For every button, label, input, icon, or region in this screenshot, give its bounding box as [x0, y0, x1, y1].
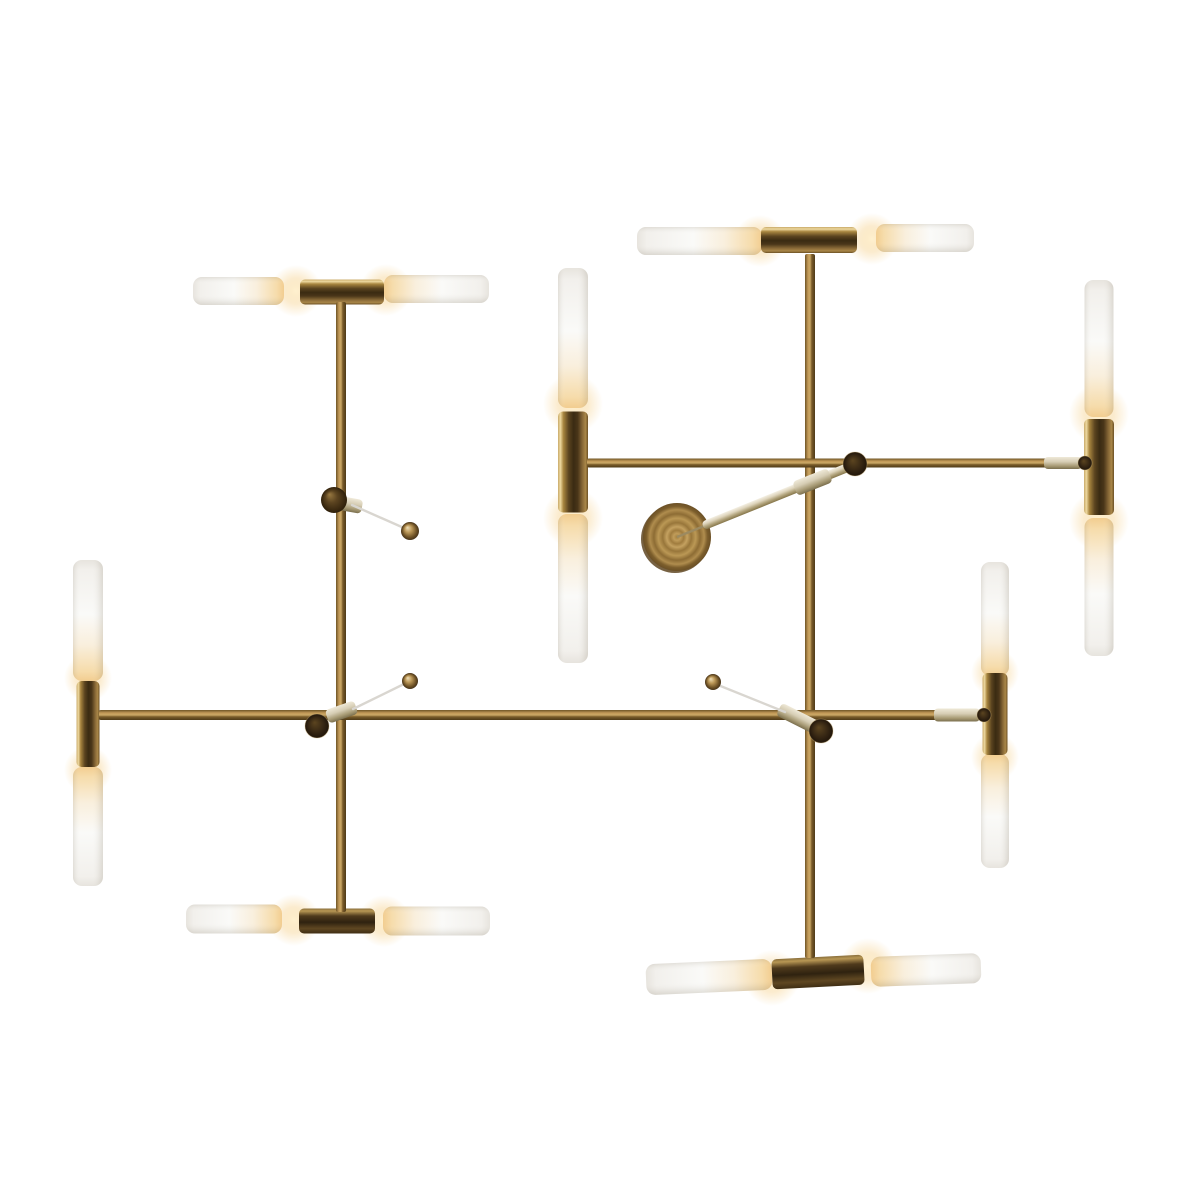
- support-wire-upper: [352, 505, 404, 528]
- chandelier-product-photo: [0, 0, 1200, 1200]
- left-vertical-rod: [336, 302, 346, 912]
- socket-main-left: [77, 681, 100, 767]
- socket-bottom-left: [299, 909, 375, 934]
- tube-bottom-right-inner: [645, 959, 772, 995]
- bar-end-sleeve-main-right: [934, 709, 980, 722]
- tube-main-right-upper-shade: [981, 562, 1009, 676]
- tube-bottom-right-inner-shade: [645, 959, 772, 995]
- end-cap-stem-knob: [843, 452, 867, 476]
- tube-mid-right-upper: [1085, 280, 1114, 417]
- tube-main-right-lower: [981, 754, 1009, 868]
- socket-top-right: [761, 227, 857, 253]
- tube-top-right-outer: [876, 224, 974, 252]
- tube-bottom-left-outer: [186, 905, 282, 934]
- socket-mid-left: [558, 412, 588, 513]
- tube-top-left-outer: [193, 277, 284, 305]
- end-cap-upper-bar-right: [1078, 456, 1092, 470]
- upper-horizontal-bar: [587, 459, 1084, 468]
- socket-top-right: [761, 227, 857, 253]
- end-cap-right-junction: [809, 719, 833, 743]
- tube-top-left-inner: [384, 275, 489, 303]
- tube-main-left-lower: [73, 767, 103, 886]
- tube-bottom-left-outer-shade: [186, 905, 282, 934]
- tube-bottom-right-outer: [871, 953, 982, 987]
- tube-main-left-upper: [73, 560, 103, 681]
- tube-bottom-left-inner: [383, 907, 490, 936]
- wire-ball-upper: [401, 522, 419, 540]
- bar-end-sleeve-upper-right: [1044, 457, 1082, 469]
- socket-top-left: [300, 280, 384, 305]
- tube-top-left-inner-shade: [384, 275, 489, 303]
- tube-mid-left-upper: [558, 268, 588, 408]
- bar-end-sleeve-main-right: [934, 709, 980, 722]
- tube-bottom-left-inner-shade: [383, 907, 490, 936]
- main-horizontal-bar: [99, 710, 986, 720]
- chandelier-svg: [0, 0, 1200, 1200]
- socket-main-left: [77, 681, 100, 767]
- bar-end-sleeve-upper-right: [1044, 457, 1082, 469]
- wire-ball-right: [705, 674, 721, 690]
- tube-mid-left-lower-shade: [558, 514, 588, 663]
- tube-mid-right-lower-shade: [1085, 518, 1114, 656]
- tube-mid-right-lower: [1085, 518, 1114, 656]
- tube-top-right-outer-shade: [876, 224, 974, 252]
- right-vertical-rod: [805, 254, 815, 958]
- tube-main-right-upper: [981, 562, 1009, 676]
- socket-bottom-right: [771, 955, 864, 990]
- socket-mid-left: [558, 412, 588, 513]
- end-cap-left-junction: [305, 714, 329, 738]
- tube-bottom-right-outer-shade: [871, 953, 982, 987]
- tube-top-right-inner-shade: [637, 227, 762, 255]
- end-cap-main-bar-right: [977, 708, 991, 722]
- tube-main-left-lower-shade: [73, 767, 103, 886]
- tube-main-left-upper-shade: [73, 560, 103, 681]
- tube-mid-left-lower: [558, 514, 588, 663]
- tube-mid-right-upper-shade: [1085, 280, 1114, 417]
- tube-mid-left-upper-shade: [558, 268, 588, 408]
- tube-top-left-outer-shade: [193, 277, 284, 305]
- pivot-ball-left-rod: [321, 487, 347, 513]
- socket-bottom-right: [771, 955, 864, 990]
- wire-ball-left: [402, 673, 418, 689]
- tube-top-right-inner: [637, 227, 762, 255]
- socket-bottom-left: [299, 909, 375, 934]
- support-wire-left: [353, 684, 404, 709]
- socket-top-left: [300, 280, 384, 305]
- tube-main-right-lower-shade: [981, 754, 1009, 868]
- support-wire-right: [718, 685, 785, 712]
